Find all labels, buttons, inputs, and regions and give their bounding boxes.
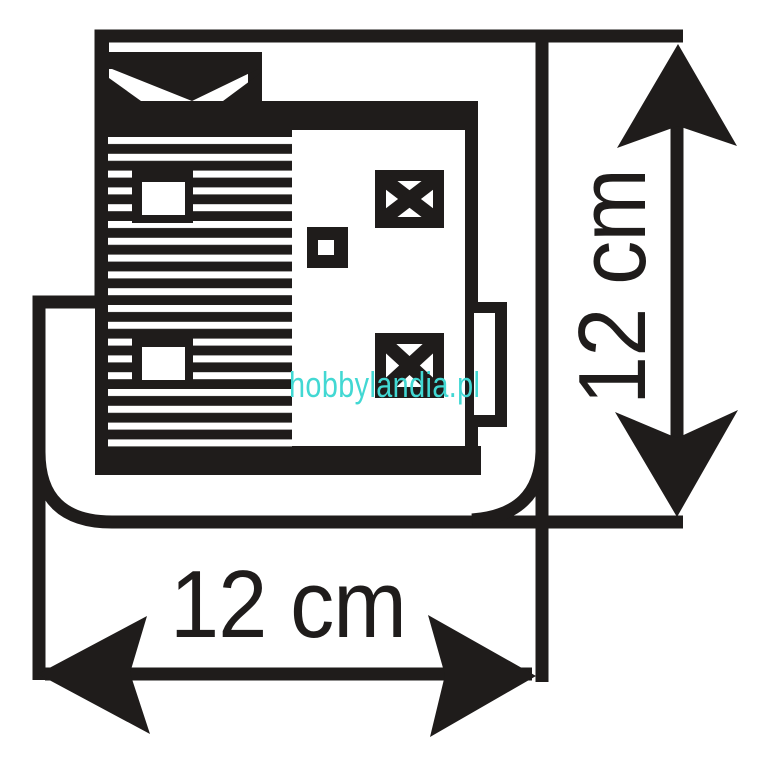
- roof-vent-opening: [318, 240, 334, 255]
- vertical-dimension-label: 12 cm: [565, 169, 661, 405]
- roof-vent: [307, 227, 348, 268]
- base-corner-arc-bottom-right: [472, 452, 542, 520]
- horizontal-dimension-label: 12 cm: [170, 557, 406, 653]
- skylight-1: [132, 170, 193, 223]
- building-wall-top: [95, 101, 478, 130]
- building-wall-bottom: [95, 446, 481, 475]
- building-footprint: [95, 40, 507, 475]
- gable-symbol: [102, 52, 262, 101]
- diagram-canvas: 12 cm 12 cm hobbylandia.pl: [0, 0, 770, 768]
- skylight-1-pane: [142, 182, 185, 215]
- watermark-text: hobbylandia.pl: [289, 367, 480, 403]
- chimney-x-1: [375, 170, 444, 228]
- skylight-2: [132, 338, 193, 389]
- gable-top-bar: [103, 52, 262, 69]
- skylight-2-pane: [142, 347, 185, 380]
